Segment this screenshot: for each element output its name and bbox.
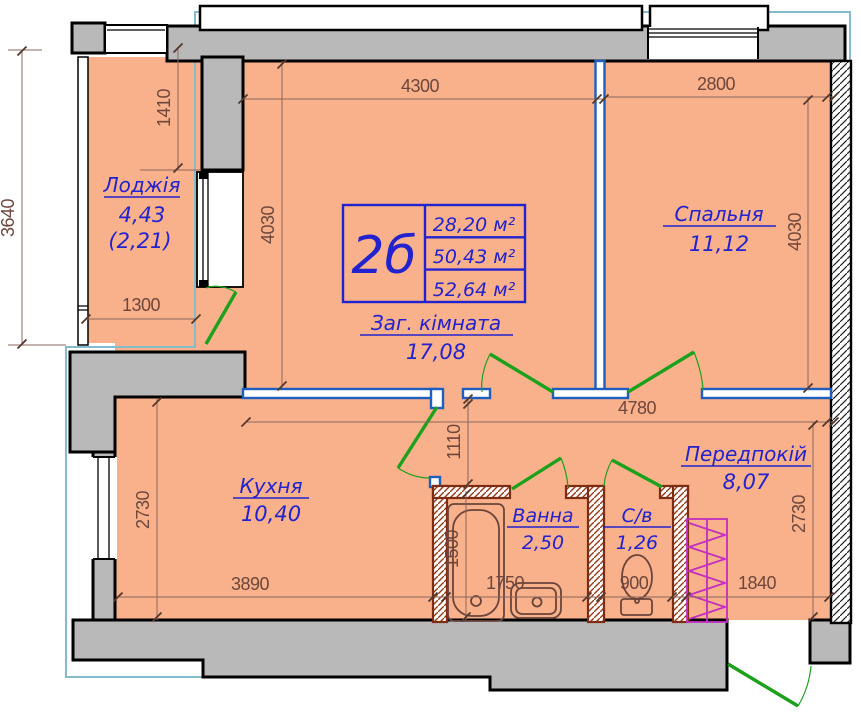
dim-hall-passage: 1110	[444, 424, 464, 460]
bedroom-window-opening	[648, 27, 758, 59]
kitchen-area: 10,40	[241, 502, 301, 526]
hall-partition-2	[463, 389, 490, 398]
hall-area: 8,07	[723, 470, 770, 494]
dim-bath-depth: 1500	[442, 529, 462, 568]
dim-loggia-door: 1300	[122, 295, 161, 315]
loggia-glazing	[78, 57, 88, 345]
loggia-name: Лоджія	[103, 173, 181, 197]
bedroom-window	[648, 27, 758, 59]
wc-wall-right	[673, 486, 688, 622]
dim-kitchen-depth: 2730	[133, 490, 153, 529]
window-cap-top	[199, 172, 208, 179]
entry-jamb-wall	[810, 620, 850, 663]
upper-slab-right	[650, 6, 768, 30]
bath-wall-top	[433, 486, 510, 498]
living-name: Заг. кімната	[371, 311, 501, 335]
dim-living-width: 4300	[401, 76, 440, 96]
floor-plan-canvas: 4300 2800 4030 4030 1410 3640 1300 4780 …	[0, 0, 861, 714]
unit-type-label: 2б	[351, 226, 416, 286]
hall-partition-stub	[431, 389, 443, 408]
wc-area: 1,26	[616, 532, 658, 554]
entry-door-leaf	[728, 664, 798, 706]
right-exterior-wall	[831, 61, 851, 623]
loggia-area: 4,43	[119, 203, 166, 227]
loggia-glazing-band	[78, 57, 88, 345]
floor-plan-drawing: 4300 2800 4030 4030 1410 3640 1300 4780 …	[0, 0, 861, 714]
living-bedroom-partition	[596, 61, 605, 390]
living-loggia-window	[197, 172, 243, 287]
hall-partition-3	[553, 389, 628, 398]
kitchen-window-opening	[91, 457, 117, 559]
area-row-1: 28,20 м²	[433, 214, 516, 236]
upper-slab-outlines	[200, 6, 768, 30]
dim-hall-depth: 2730	[789, 494, 809, 533]
hall-name: Передпокій	[685, 442, 807, 466]
bath-wc-wall	[588, 486, 604, 622]
dim-loggia-glazing: 3640	[0, 198, 18, 237]
hall-partition-4	[702, 389, 831, 398]
bath-area: 2,50	[522, 532, 564, 554]
hall-partition-1	[243, 389, 437, 398]
dim-bedroom-depth: 4030	[785, 212, 805, 251]
kitchen-name: Кухня	[240, 474, 303, 498]
dim-kitchen-width: 3890	[231, 574, 270, 594]
loggia-pillar	[72, 23, 105, 53]
bedroom-name: Спальня	[675, 202, 764, 226]
dim-loggia-wall: 1410	[154, 88, 174, 127]
upper-slab-left	[200, 6, 642, 30]
loggia-living-wall	[202, 57, 243, 170]
bedroom-area: 11,12	[689, 232, 749, 256]
window-cap-bottom	[199, 280, 208, 287]
loggia-top-window-frame	[105, 25, 167, 53]
dim-bath-width: 1750	[486, 573, 525, 593]
living-area: 17,08	[406, 340, 466, 364]
kitchen-window	[91, 457, 117, 559]
dim-hall-width: 4780	[618, 398, 657, 418]
loggia-area-reduced: (2,21)	[108, 229, 171, 253]
living-loggia-window-opening	[197, 172, 243, 287]
dim-living-depth: 4030	[258, 205, 278, 244]
area-row-2: 50,43 м²	[433, 246, 516, 268]
dim-entry-width: 1840	[738, 573, 777, 593]
bath-name: Ванна	[512, 505, 573, 527]
entry-door-arc	[798, 666, 811, 706]
area-row-3: 52,64 м²	[433, 279, 516, 301]
dim-wc-width: 900	[620, 573, 649, 593]
loggia-top-window	[105, 25, 167, 53]
wc-name: С/в	[622, 505, 653, 527]
bottom-wall	[73, 620, 727, 690]
dim-bedroom-width: 2800	[697, 74, 736, 94]
